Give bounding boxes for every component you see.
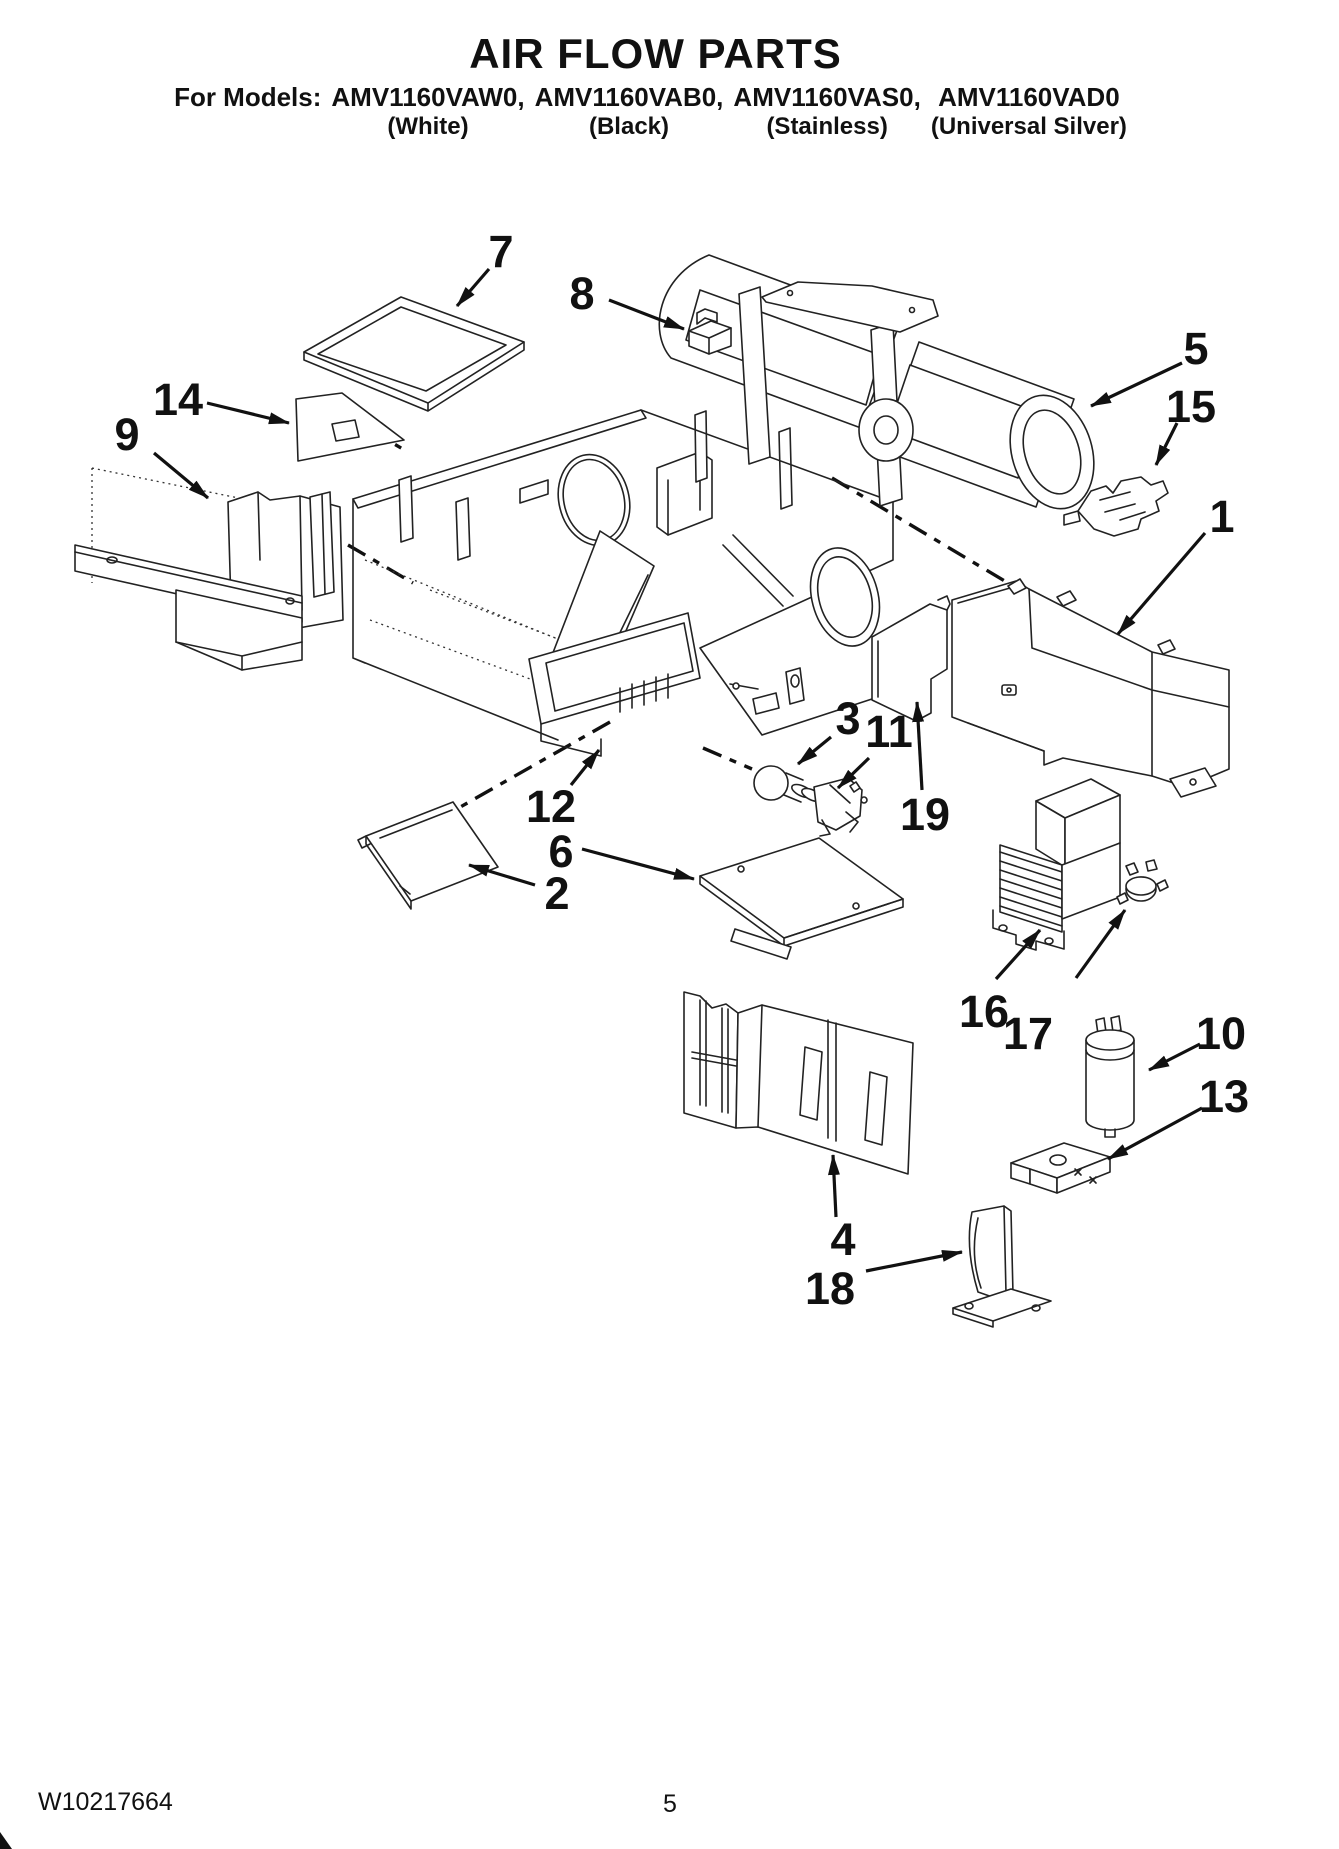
part-14-wedge-plate — [296, 393, 404, 461]
callout-16-arrow — [996, 930, 1040, 979]
callout-label-6: 6 — [548, 826, 573, 877]
part-17-thermostat — [1117, 860, 1168, 904]
callout-label-4: 4 — [830, 1214, 855, 1265]
part-12-chassis — [353, 410, 893, 756]
part-9-panel-assembly — [75, 468, 343, 670]
callout-label-1: 1 — [1209, 491, 1234, 542]
callout-label-8: 8 — [569, 268, 594, 319]
callout-label-9: 9 — [114, 409, 139, 460]
callout-4-arrow — [833, 1155, 836, 1217]
callout-label-13: 13 — [1199, 1071, 1249, 1122]
callout-label-15: 15 — [1166, 381, 1216, 432]
callout-label-16: 16 — [959, 986, 1009, 1037]
callout-label-11: 11 — [865, 706, 913, 757]
part-18-support-bracket — [953, 1206, 1051, 1327]
callout-label-12: 12 — [526, 781, 576, 832]
exploded-diagram: 1 2 3 4 5 6 7 8 9 10 11 12 13 14 15 16 1… — [0, 0, 1339, 1849]
part-16-transformer — [993, 779, 1120, 950]
callout-10-arrow — [1149, 1044, 1200, 1070]
footer-page-number: 5 — [640, 1790, 700, 1819]
part-1-duct — [952, 579, 1229, 797]
manual-page: AIR FLOW PARTS For Models: AMV1160VAW0, … — [0, 0, 1339, 1849]
callout-12-arrow — [571, 750, 599, 785]
callout-label-19: 19 — [900, 789, 950, 840]
part-10-capacitor — [1086, 1016, 1134, 1137]
callout-14-arrow — [207, 403, 289, 423]
part-5-blower-assembly — [659, 255, 1107, 519]
footer-doc-number: W10217664 — [38, 1788, 173, 1817]
callout-1-arrow — [1118, 533, 1205, 634]
part-19-side-panel — [872, 596, 950, 721]
callout-label-5: 5 — [1183, 323, 1208, 374]
scan-corner-mark — [0, 1832, 12, 1849]
connector-dash-line — [703, 748, 752, 769]
part-2-cover-panel — [358, 802, 498, 909]
part-13-bracket — [1011, 1143, 1110, 1193]
part-6-cover-panel — [700, 838, 903, 959]
callout-label-10: 10 — [1196, 1008, 1246, 1059]
callout-7-arrow — [457, 269, 489, 306]
part-4-vent-panel — [684, 992, 913, 1174]
callout-label-14: 14 — [153, 374, 203, 425]
callout-9-arrow — [154, 453, 208, 498]
callout-label-17: 17 — [1003, 1008, 1053, 1059]
callout-6-arrow — [582, 849, 694, 879]
connector-dash-line — [348, 545, 413, 583]
part-3-bulb — [754, 766, 824, 804]
callout-17-arrow — [1076, 910, 1125, 978]
callout-3-arrow — [798, 737, 831, 764]
callout-label-7: 7 — [488, 226, 513, 277]
callout-18-arrow — [866, 1252, 962, 1271]
callout-label-3: 3 — [835, 693, 860, 744]
callout-label-18: 18 — [805, 1263, 855, 1314]
